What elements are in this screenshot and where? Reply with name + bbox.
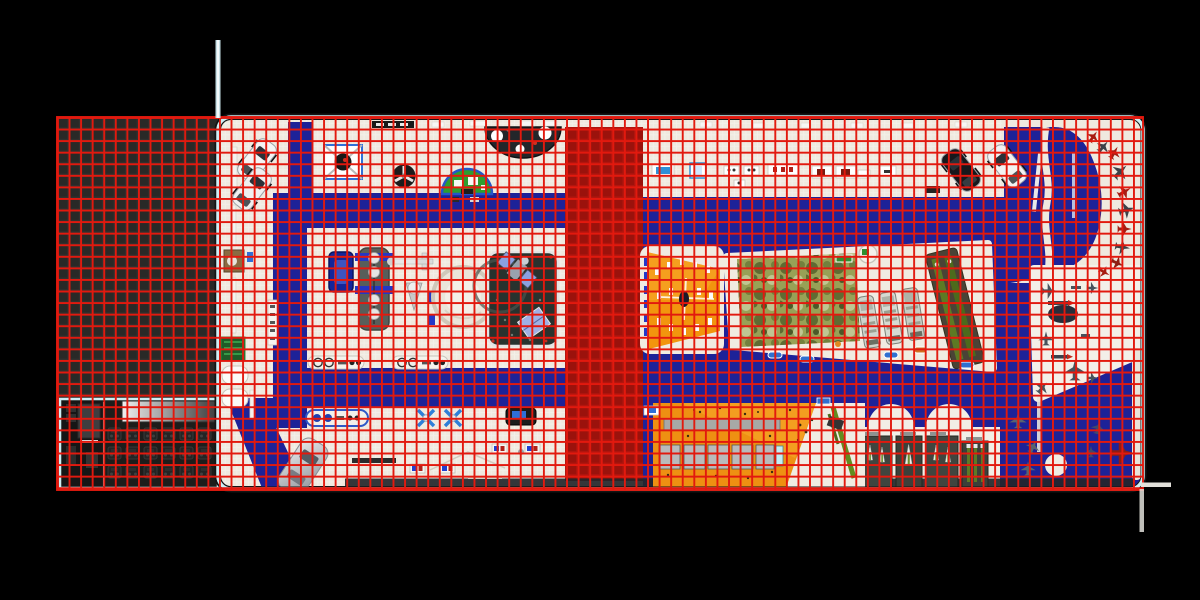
- floor-plan-render: [0, 0, 1200, 600]
- viewport[interactable]: [0, 0, 1200, 600]
- grid-overlay: [57, 117, 1143, 490]
- reference-pole: [216, 40, 221, 118]
